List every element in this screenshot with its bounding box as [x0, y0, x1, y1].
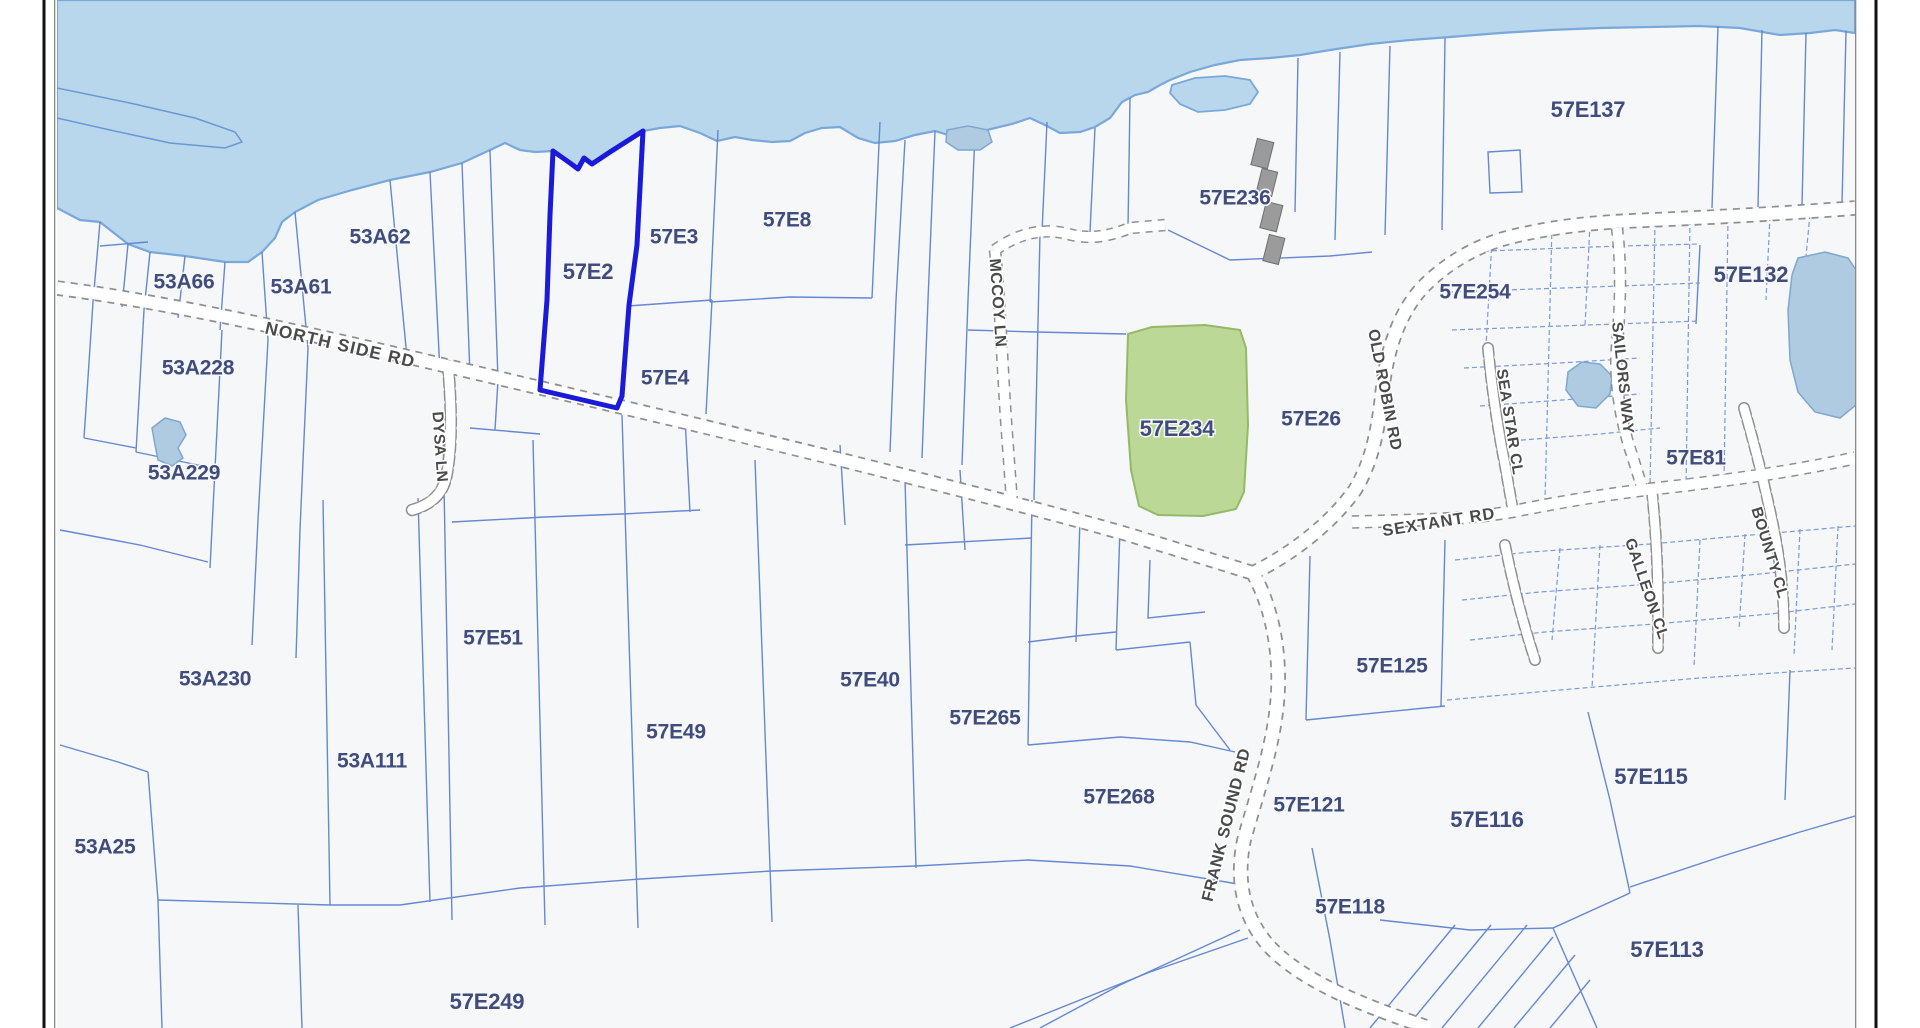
- parcel-label-57e236: 57E236: [1199, 187, 1270, 210]
- parcel-label-57e113: 57E113: [1630, 937, 1703, 962]
- parcel-label-57e81: 57E81: [1666, 447, 1726, 470]
- parcel-label-57e268: 57E268: [1083, 786, 1155, 809]
- parcel-label-53a111: 53A111: [337, 750, 408, 773]
- parcel-label-57e116: 57E116: [1450, 807, 1523, 832]
- map-viewport: 53A6653A6153A6253A22853A22957E257E357E85…: [0, 0, 1920, 1028]
- frame-innerline-left: [54, 0, 55, 1028]
- parcel-label-57e51: 57E51: [463, 627, 523, 650]
- cadastral-map[interactable]: 53A6653A6153A6253A22853A22957E257E357E85…: [0, 0, 1920, 1028]
- parcel-label-53a66: 53A66: [154, 271, 215, 294]
- parcel-label-57e137: 57E137: [1551, 97, 1626, 122]
- map-canvas[interactable]: 53A6653A6153A6253A22853A22957E257E357E85…: [57, 0, 1856, 1028]
- parcel-label-57e118: 57E118: [1315, 896, 1386, 919]
- parcel-label-53a62: 53A62: [350, 226, 411, 249]
- left-margin: [0, 0, 42, 1028]
- parcel-label-57e2: 57E2: [563, 259, 614, 284]
- right-margin: [1878, 0, 1920, 1028]
- frame-border-left: [43, 0, 46, 1028]
- parcel-label-53a230: 53A230: [179, 668, 251, 691]
- parcel-label-57e125: 57E125: [1356, 655, 1428, 678]
- pond-east-edge: [1788, 252, 1856, 418]
- parcel-label-57e49: 57E49: [646, 721, 706, 744]
- parcel-label-57e3: 57E3: [650, 226, 698, 249]
- frame-border-right: [1875, 0, 1878, 1028]
- pond-mccoy: [946, 126, 992, 150]
- parcel-label-57e4: 57E4: [641, 367, 690, 390]
- parcel-label-53a25: 53A25: [75, 836, 136, 859]
- parcel-label-57e40: 57E40: [840, 669, 900, 692]
- parcel-label-53a228: 53A228: [162, 357, 235, 380]
- parcel-label-53a229: 53A229: [148, 462, 220, 485]
- parcel-label-57e254: 57E254: [1439, 281, 1511, 304]
- parcel-label-57e115: 57E115: [1614, 764, 1687, 789]
- parcel-label-57e249: 57E249: [450, 989, 525, 1014]
- parcel-label-57e121: 57E121: [1273, 794, 1345, 817]
- parcel-label-53a61: 53A61: [271, 276, 332, 299]
- parcel-label-57e234: 57E234: [1140, 416, 1216, 441]
- parcel-label-57e132: 57E132: [1714, 262, 1789, 287]
- parcel-label-57e26: 57E26: [1281, 408, 1341, 431]
- pond-53A229: [152, 418, 186, 466]
- frame-innerline-right: [1855, 0, 1856, 1028]
- parcel-label-57e265: 57E265: [949, 707, 1021, 730]
- parcel-label-57e8: 57E8: [763, 209, 812, 232]
